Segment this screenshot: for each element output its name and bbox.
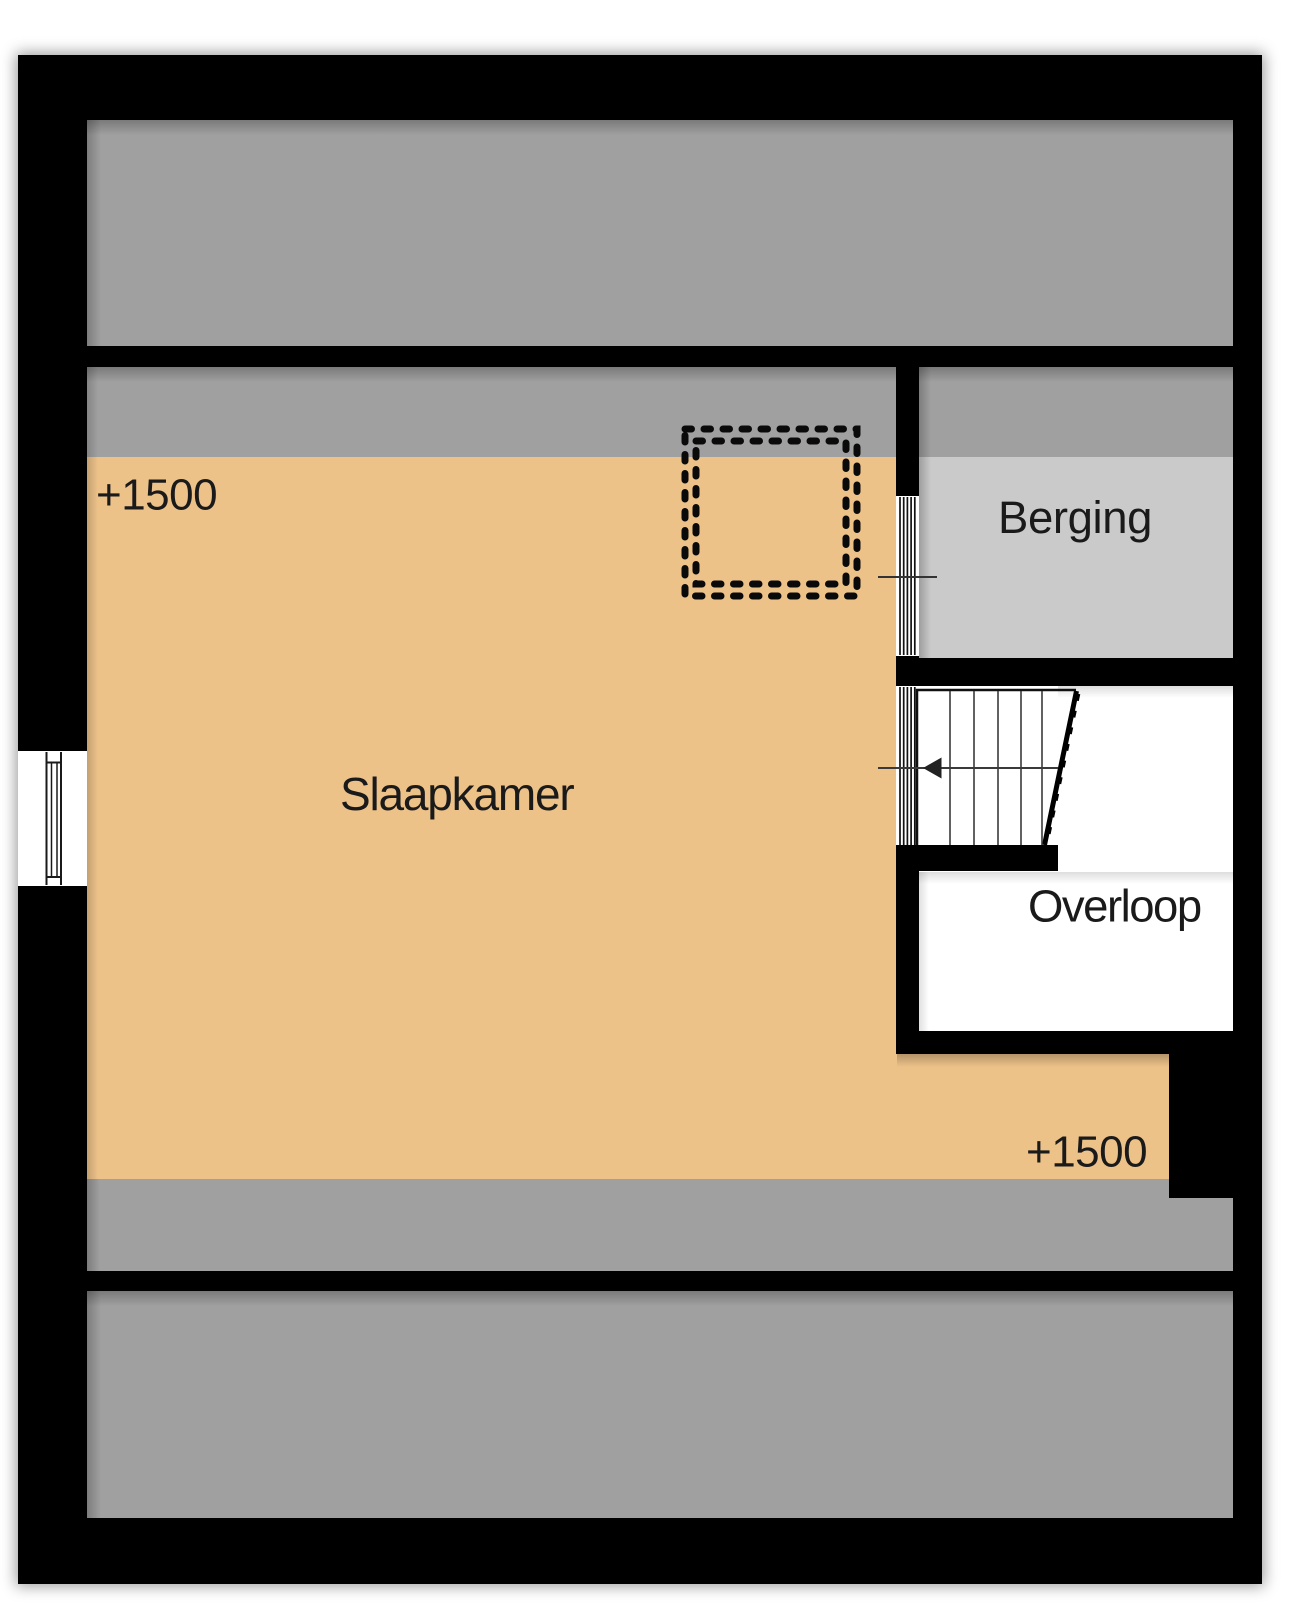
svg-text:Berging: Berging: [998, 492, 1152, 543]
svg-text:Slaapkamer: Slaapkamer: [340, 768, 574, 820]
svg-text:+1500: +1500: [1026, 1128, 1147, 1177]
svg-text:+1500: +1500: [96, 471, 217, 520]
svg-text:Overloop: Overloop: [1028, 881, 1201, 932]
